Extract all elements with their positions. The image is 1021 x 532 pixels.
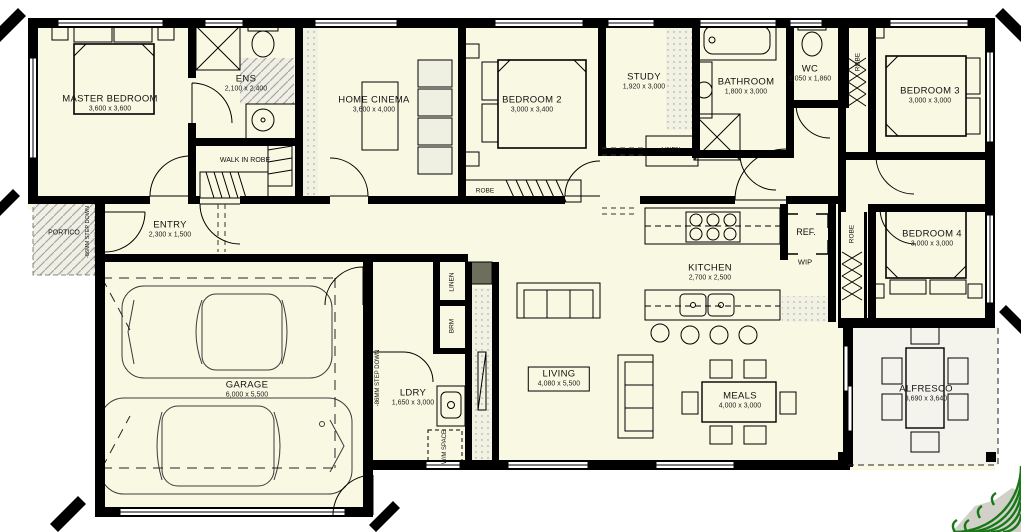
floor-plan-page: MASTER BEDROOM 3,600 x 3,600 ENS 2,100 x… — [0, 0, 1021, 532]
floor-plan-drawing — [0, 0, 1021, 532]
landscape-tree-graphic — [952, 466, 1021, 532]
portico-pad — [33, 198, 95, 275]
duct-strip-study — [666, 24, 692, 130]
wip-floor — [782, 296, 828, 322]
ens-floor-hatch — [240, 58, 294, 104]
duct-strip-cinema — [303, 26, 318, 196]
alfresco-floor — [848, 326, 998, 465]
